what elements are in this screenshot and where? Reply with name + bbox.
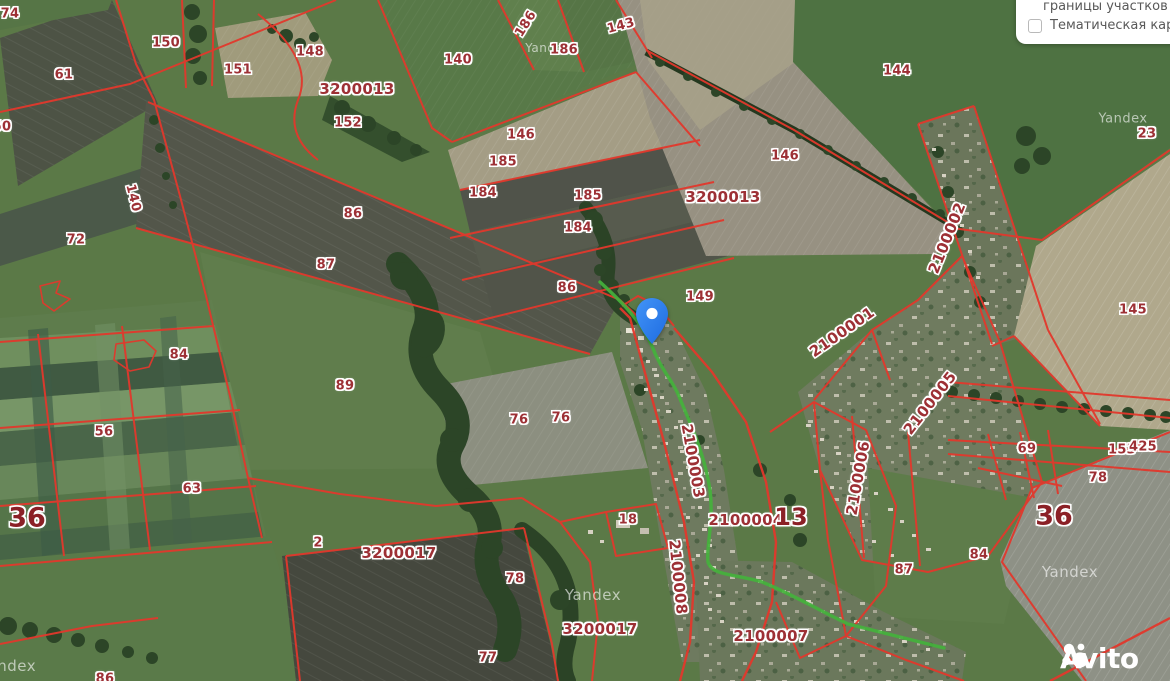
map-base <box>0 0 1170 681</box>
location-pin[interactable] <box>636 298 668 344</box>
borders-option-label: границы участков <box>1043 0 1168 14</box>
map-canvas[interactable]: YandexYandexYandexYandexYandex 741501511… <box>0 0 1170 681</box>
avito-dots-icon <box>1060 642 1090 672</box>
layer-option-borders[interactable]: границы участков <box>1043 0 1168 14</box>
layers-panel: границы участков Тематическая карта <box>1016 0 1170 44</box>
fields-layer <box>0 0 1170 681</box>
avito-logo: Avito <box>1060 642 1139 675</box>
thematic-map-checkbox[interactable] <box>1028 19 1042 33</box>
layer-option-thematic[interactable]: Тематическая карта <box>1028 18 1170 33</box>
thematic-option-label: Тематическая карта <box>1050 18 1170 33</box>
